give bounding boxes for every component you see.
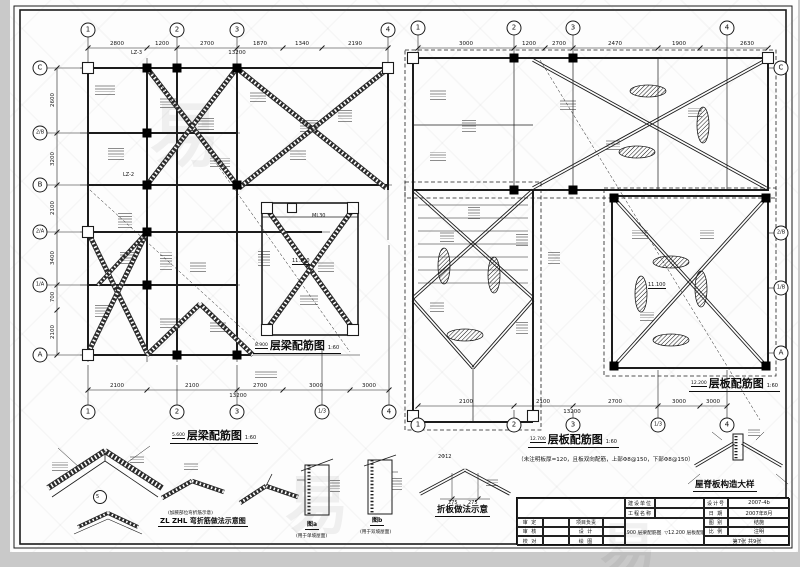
axis-bubble: 3: [230, 405, 245, 420]
fig-b-label: 图b: [370, 518, 384, 526]
lead-label: 项目负责: [569, 518, 603, 527]
elevation-prefix: 12.700: [530, 437, 546, 443]
axis-bubble: 3: [566, 21, 581, 36]
dimension-text: 3200: [50, 152, 56, 166]
axis-bubble: B: [33, 178, 48, 193]
axis-bubble: 2/B: [33, 126, 48, 141]
caption-beam-plan-lower: 5.600层梁配筋图1:60: [170, 430, 258, 444]
axis-bubble: 4: [720, 21, 735, 36]
slab-note: （未注明板厚=120，且板双向配筋，上部Φ8@150，下部Φ8@150）: [518, 455, 694, 463]
column-label: LZ-2: [123, 172, 134, 178]
fig-a-label: 图a: [305, 522, 319, 530]
rebar-label: 2Φ12: [438, 454, 451, 460]
dimension-total: 13200: [229, 393, 247, 399]
designer-label: 设 计: [569, 527, 603, 536]
dimension-text: 2100: [50, 201, 56, 215]
axis-bubble: 4: [382, 405, 397, 420]
axis-bubble: C: [774, 61, 789, 76]
checker-value: [543, 527, 569, 536]
dimension-total: 13200: [563, 409, 581, 415]
axis-bubble: 1/3: [651, 418, 666, 433]
dimension-text: 2700: [200, 41, 214, 47]
dimension-text: 2630: [740, 41, 754, 47]
dimension-text: 3000: [362, 383, 376, 389]
axis-bubble: 2: [507, 21, 522, 36]
dimension-text: 2700: [253, 383, 267, 389]
lead-value: [603, 518, 625, 527]
dimension-text: 1340: [295, 41, 309, 47]
axis-bubble: 1: [411, 418, 426, 433]
drawing-canvas: [0, 0, 800, 567]
content-2: ▽12.200 层板配筋图: [664, 529, 704, 536]
elevation-label: 11.100: [292, 258, 310, 265]
beam-label: ML30: [312, 213, 325, 219]
detail-ref-number: 5: [96, 494, 99, 500]
axis-bubble: 2: [507, 418, 522, 433]
owner-label: 建设单位: [625, 498, 655, 508]
elevation-prefix: 5.600: [172, 433, 185, 439]
dimension-text: 1900: [672, 41, 686, 47]
axis-bubble: 2: [170, 405, 185, 420]
sheet-type-value: 结施: [728, 518, 790, 527]
dimension-text: 2100: [185, 383, 199, 389]
design-no-label: 设计号: [704, 498, 728, 508]
axis-bubble: 4: [381, 23, 396, 38]
dimension-text: 1870: [253, 41, 267, 47]
dimension-text: 1200: [155, 41, 169, 47]
dimension-text: 700: [50, 292, 56, 303]
column-label: LZ-3: [131, 50, 142, 56]
designer-value: [603, 527, 625, 536]
axis-bubble: 4: [720, 418, 735, 433]
dimension-text: 3000: [672, 399, 686, 405]
caption-beam-plan-upper: 8.900层梁配筋图1:60: [253, 340, 341, 354]
checker-label: 审 核: [517, 527, 543, 536]
dimension-text: 3400: [50, 251, 56, 265]
cad-sheet-page: 8.900层梁配筋图1:60 5.600层梁配筋图1:60 12.200层板配筋…: [0, 0, 800, 567]
dimension-text: 2600: [50, 93, 56, 107]
caption-slab-plan-upper: 12.200层板配筋图1:60: [689, 378, 780, 392]
drawing-contents-cell: ▽8.900 层梁配筋图 ▽12.200 层板配筋图: [625, 518, 704, 546]
axis-bubble: 2/B: [774, 226, 789, 241]
dimension-text: 3000: [309, 383, 323, 389]
approver-value: [543, 518, 569, 527]
scale-value: 注明: [728, 527, 790, 536]
dimension-text: 3000: [459, 41, 473, 47]
dimension-text: 2100: [110, 383, 124, 389]
ridge-slab-caption: 屋脊板构造大样: [693, 481, 757, 492]
dimension-text: 2800: [110, 41, 124, 47]
date-value: 2007年8月: [728, 508, 790, 518]
dimension-text: 2100: [459, 399, 473, 405]
dimension-text: 3000: [706, 399, 720, 405]
axis-bubble: 3: [566, 418, 581, 433]
fig-a-sub: (用于单坡屋面): [296, 533, 327, 539]
elevation-prefix: 8.900: [255, 343, 268, 349]
dimension-text: 2100: [50, 325, 56, 339]
caption-slab-plan-lower: 12.700层板配筋图1:60: [528, 434, 619, 448]
axis-bubble: A: [774, 346, 789, 361]
company-cell: [517, 498, 625, 518]
scale-label: 比 例: [704, 527, 728, 536]
axis-bubble: A: [33, 348, 48, 363]
dimension-text: 2470: [608, 41, 622, 47]
proofer-value: [543, 536, 569, 546]
drafter-label: 绘 图: [569, 536, 603, 546]
dimension-text: 2700: [608, 399, 622, 405]
axis-bubble: 1: [411, 21, 426, 36]
sheet-number-cell: 第7张 共9张: [704, 536, 790, 546]
fold-dim-right: 275: [468, 500, 478, 506]
date-label: 日 期: [704, 508, 728, 518]
axis-bubble: C: [33, 61, 48, 76]
title-block: 建设单位 工程名称 设计号 2007-4b 日 期 2007年8月 审 定 项目…: [516, 497, 789, 545]
fold-plate-caption: 折板做法示意: [435, 506, 490, 517]
axis-bubble: 1: [81, 405, 96, 420]
dimension-text: 2190: [348, 41, 362, 47]
axis-bubble: 1: [81, 23, 96, 38]
elevation-label: 11.100: [648, 282, 666, 289]
content-1: ▽8.900 层梁配筋图: [625, 529, 661, 536]
fig-b-sub: (用于双坡屋面): [360, 529, 391, 535]
project-value: [655, 508, 704, 518]
dimension-text: 1200: [522, 41, 536, 47]
axis-bubble: 1/3: [315, 405, 330, 420]
dimension-text: 2100: [536, 399, 550, 405]
fold-dim-left: 275: [448, 500, 458, 506]
zl-detail-note: (加腋部位弯折筋示意): [168, 510, 213, 516]
dimension-text: 2700: [552, 41, 566, 47]
axis-bubble: 2: [170, 23, 185, 38]
proofer-label: 校 对: [517, 536, 543, 546]
design-no-value: 2007-4b: [728, 498, 790, 508]
elevation-prefix: 12.200: [691, 381, 707, 387]
drafter-value: [603, 536, 625, 546]
axis-bubble: 2/A: [33, 225, 48, 240]
axis-bubble: 3: [230, 23, 245, 38]
axis-bubble: 1/B: [774, 281, 789, 296]
zl-detail-caption: ZL ZHL 弯折筋做法示意图: [158, 518, 248, 527]
owner-value: [655, 498, 704, 508]
approver-label: 审 定: [517, 518, 543, 527]
sheet-type-label: 图 别: [704, 518, 728, 527]
project-label: 工程名称: [625, 508, 655, 518]
axis-bubble: 1/A: [33, 278, 48, 293]
dimension-total: 13200: [228, 50, 246, 56]
